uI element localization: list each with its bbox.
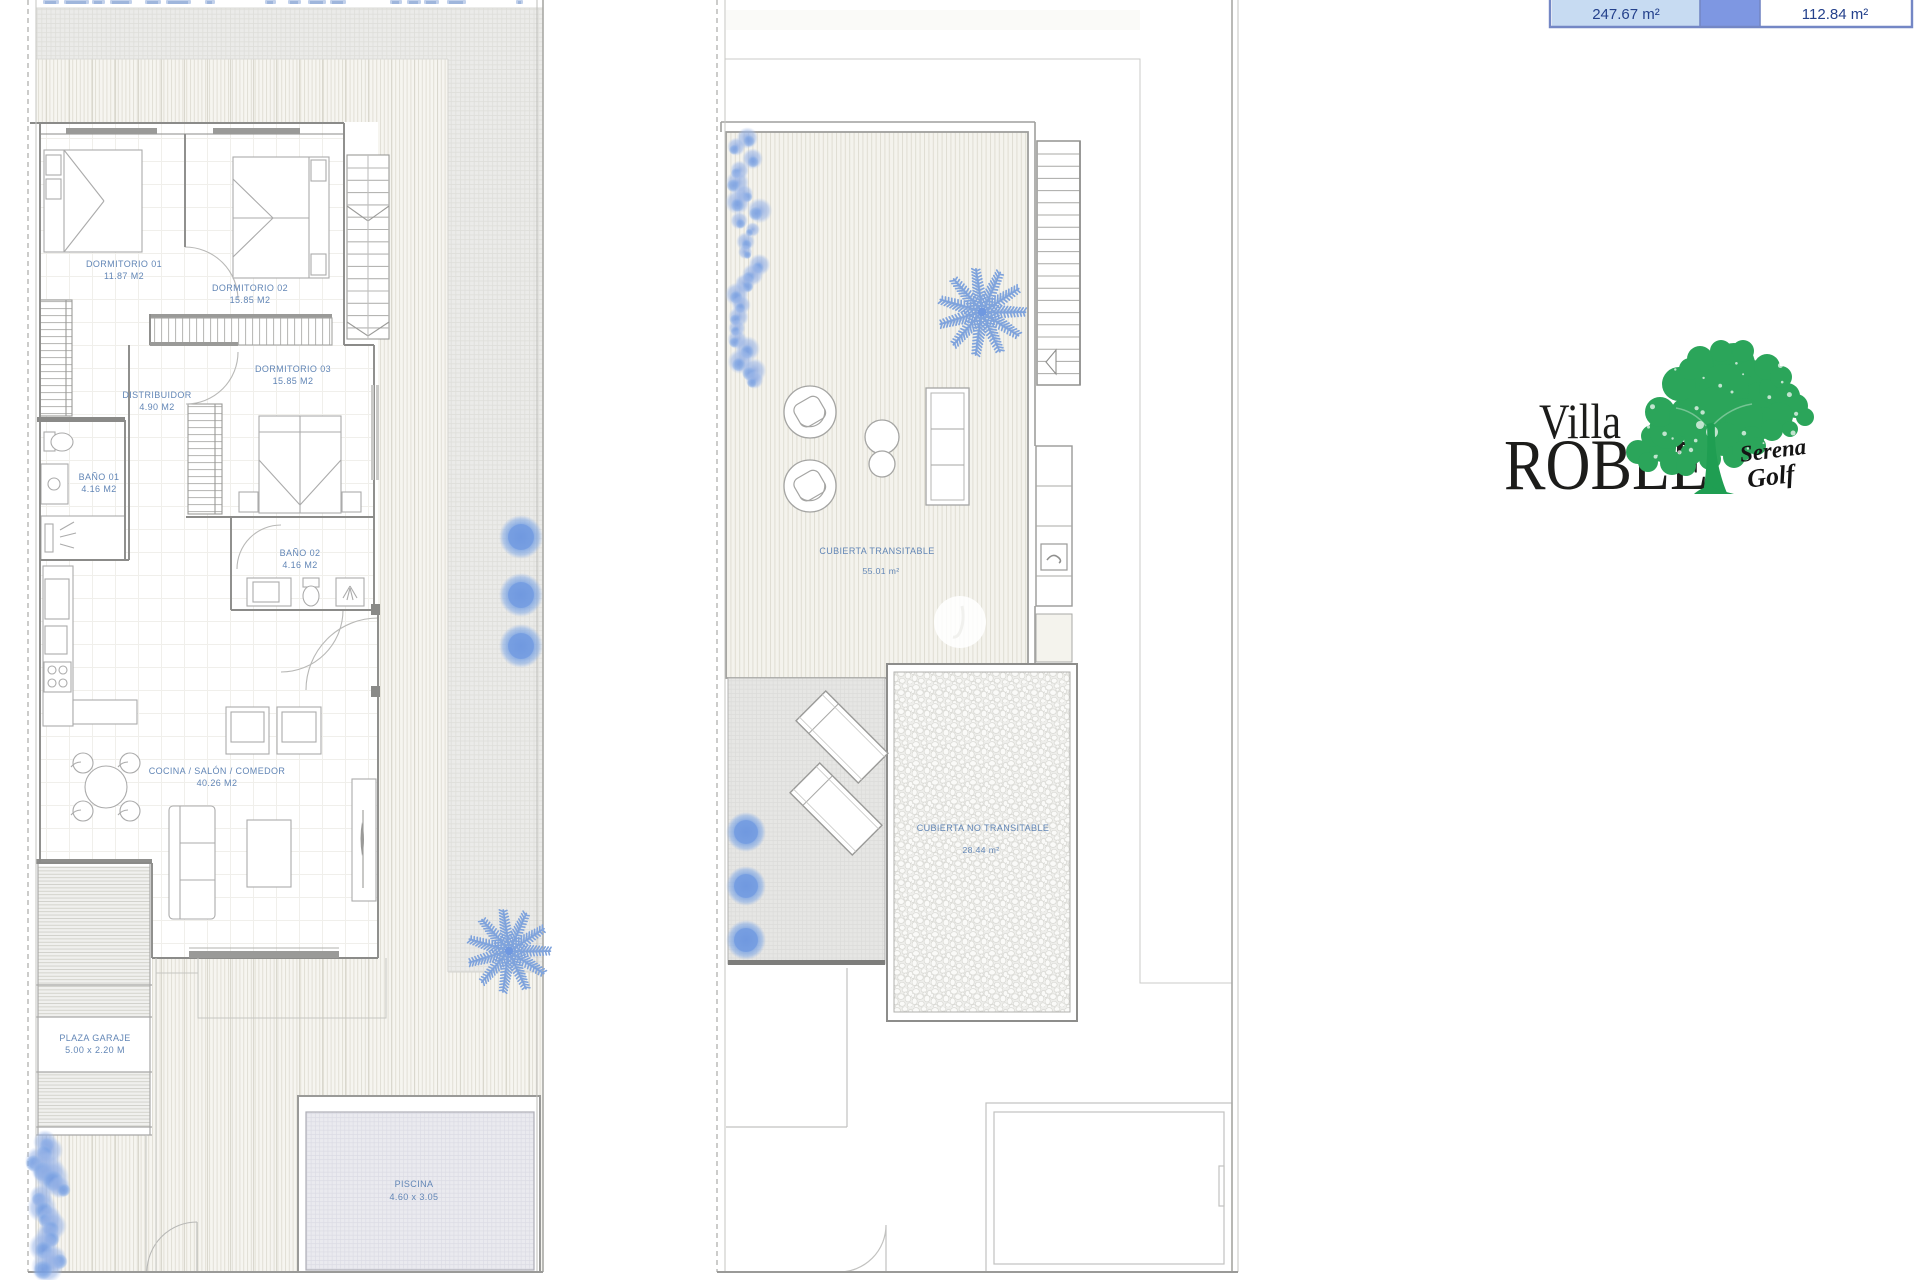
svg-text:4.16 M2: 4.16 M2 bbox=[81, 484, 116, 494]
svg-text:5.00 x 2.20 M: 5.00 x 2.20 M bbox=[65, 1045, 125, 1055]
svg-text:PLAZA GARAJE: PLAZA GARAJE bbox=[59, 1033, 130, 1043]
svg-text:DISTRIBUIDOR: DISTRIBUIDOR bbox=[122, 390, 191, 400]
svg-text:BAÑO 01: BAÑO 01 bbox=[79, 472, 120, 482]
svg-text:BAÑO 02: BAÑO 02 bbox=[280, 548, 321, 558]
svg-text:DORMITORIO 02: DORMITORIO 02 bbox=[212, 283, 288, 293]
svg-text:PISCINA: PISCINA bbox=[395, 1179, 434, 1189]
svg-text:15.85 M2: 15.85 M2 bbox=[273, 376, 314, 386]
svg-text:4.60 x 3.05: 4.60 x 3.05 bbox=[390, 1192, 439, 1202]
svg-text:55.01 m²: 55.01 m² bbox=[862, 566, 899, 576]
svg-text:15.85 M2: 15.85 M2 bbox=[230, 295, 271, 305]
svg-text:COCINA / SALÓN / COMEDOR: COCINA / SALÓN / COMEDOR bbox=[149, 766, 286, 776]
svg-text:4.90 M2: 4.90 M2 bbox=[139, 402, 174, 412]
svg-text:28.44 m²: 28.44 m² bbox=[962, 845, 999, 855]
svg-text:11.87 M2: 11.87 M2 bbox=[104, 271, 144, 281]
svg-text:247.67 m²: 247.67 m² bbox=[1592, 6, 1660, 23]
svg-text:4.16 M2: 4.16 M2 bbox=[282, 560, 317, 570]
svg-text:Golf: Golf bbox=[1745, 459, 1798, 494]
svg-text:DORMITORIO 03: DORMITORIO 03 bbox=[255, 364, 331, 374]
svg-text:CUBIERTA NO TRANSITABLE: CUBIERTA NO TRANSITABLE bbox=[917, 823, 1050, 833]
svg-text:DORMITORIO 01: DORMITORIO 01 bbox=[86, 259, 162, 269]
svg-text:CUBIERTA TRANSITABLE: CUBIERTA TRANSITABLE bbox=[819, 546, 934, 556]
svg-text:40.26 M2: 40.26 M2 bbox=[197, 778, 238, 788]
svg-text:112.84 m²: 112.84 m² bbox=[1802, 6, 1868, 23]
